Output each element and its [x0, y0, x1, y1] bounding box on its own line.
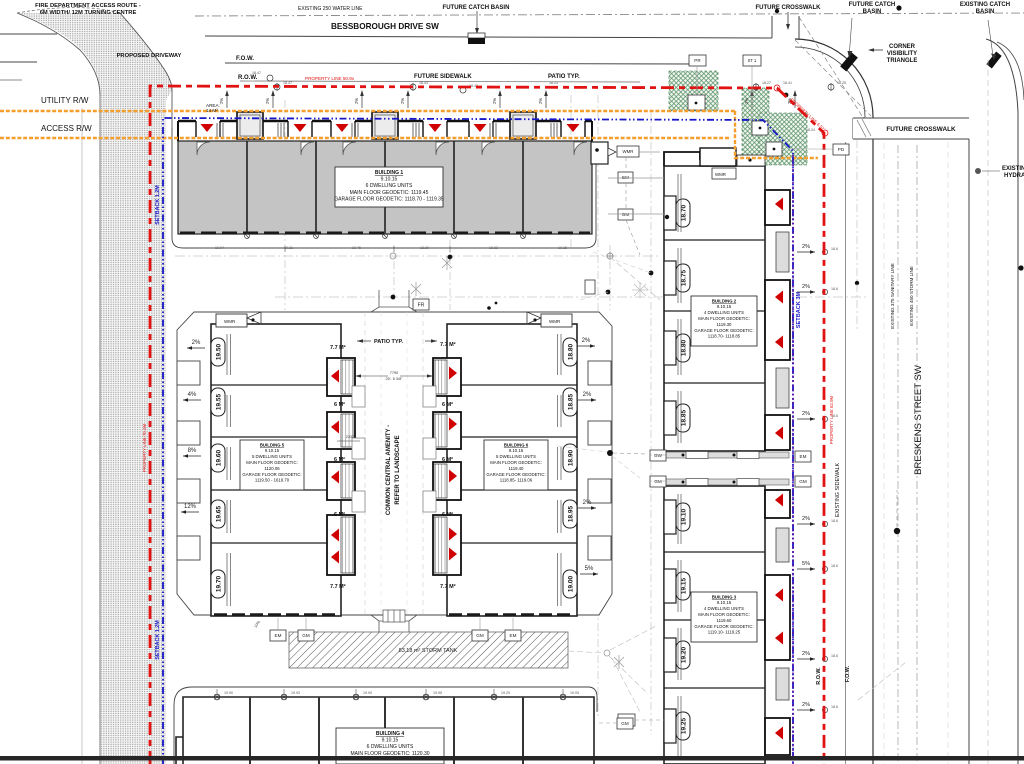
svg-text:18.6: 18.6	[831, 654, 838, 658]
svg-text:WMR: WMR	[715, 172, 726, 177]
svg-text:18.6: 18.6	[831, 519, 838, 523]
svg-text:PROPERTY LINE 70.2M: PROPERTY LINE 70.2M	[142, 423, 147, 472]
svg-text:19.45: 19.45	[352, 246, 361, 250]
svg-text:7.7 M²: 7.7 M²	[330, 344, 346, 351]
svg-text:1119.50 - 1619.70: 1119.50 - 1619.70	[255, 478, 290, 483]
svg-text:F.O.W.: F.O.W.	[845, 665, 851, 682]
svg-text:MAIN FLOOR GEODETIC: 1119.45: MAIN FLOOR GEODETIC: 1119.45	[350, 190, 429, 196]
svg-text:FIRE DEPARTMENT ACCESS ROUTE -: FIRE DEPARTMENT ACCESS ROUTE -	[35, 3, 141, 9]
svg-text:6 M²: 6 M²	[334, 401, 345, 408]
svg-text:2%: 2%	[802, 651, 810, 657]
svg-text:2%: 2%	[583, 500, 592, 506]
svg-text:1119.30: 1119.30	[717, 322, 733, 327]
svg-text:R.O.W.: R.O.W.	[238, 75, 258, 81]
svg-text:BASIN: BASIN	[976, 9, 995, 15]
svg-text:GARAGE FLOOR GEODETIC: 1118.70: GARAGE FLOOR GEODETIC: 1118.70 - 1119.35	[334, 196, 444, 202]
svg-text:BASIN: BASIN	[863, 9, 882, 15]
svg-text:2%: 2%	[582, 338, 591, 344]
svg-text:9.10.15: 9.10.15	[265, 448, 280, 453]
svg-text:6 DWELLING UNITS: 6 DWELLING UNITS	[366, 183, 413, 189]
svg-text:12%: 12%	[184, 504, 197, 510]
svg-text:REFER TO LANDSCAPE: REFER TO LANDSCAPE	[395, 435, 401, 504]
svg-text:19.90: 19.90	[363, 691, 372, 695]
svg-text:9.10.15: 9.10.15	[717, 600, 732, 605]
svg-text:SETBACK 1.2M: SETBACK 1.2M	[155, 620, 161, 660]
svg-text:PATIO TYP.: PATIO TYP.	[374, 339, 404, 345]
svg-text:1119.60: 1119.60	[717, 618, 733, 623]
svg-text:19.04: 19.04	[215, 246, 224, 250]
svg-text:2330: 2330	[346, 435, 354, 439]
svg-text:6M WIDTH/ 12M TURNING CENTRE: 6M WIDTH/ 12M TURNING CENTRE	[40, 10, 137, 16]
svg-text:WMR: WMR	[623, 149, 634, 154]
svg-text:7.7 M²: 7.7 M²	[330, 583, 346, 590]
svg-text:GM: GM	[622, 212, 630, 217]
svg-text:BRESKENS STREET SW: BRESKENS STREET SW	[913, 365, 924, 475]
svg-text:2%: 2%	[192, 340, 201, 346]
svg-text:9.10.15: 9.10.15	[381, 177, 398, 183]
svg-text:EXISTING SIDEWALK: EXISTING SIDEWALK	[835, 462, 841, 517]
svg-text:19.95: 19.95	[433, 691, 442, 695]
svg-text:PROPERTY LINE 50.9x: PROPERTY LINE 50.9x	[305, 76, 355, 81]
svg-text:UTILITY R/W: UTILITY R/W	[41, 96, 89, 105]
svg-text:19.70: 19.70	[215, 575, 222, 592]
svg-text:PROPERTY LINE 62.9M: PROPERTY LINE 62.9M	[829, 395, 834, 444]
svg-text:MAIN FLOOR GEODETIC:: MAIN FLOOR GEODETIC:	[490, 460, 542, 465]
svg-text:GW: GW	[654, 453, 663, 458]
svg-text:PR: PR	[694, 58, 701, 63]
svg-text:GM: GM	[799, 479, 807, 484]
svg-text:EXISTING 375 SANITARY LINE: EXISTING 375 SANITARY LINE	[890, 263, 895, 329]
svg-text:2%: 2%	[583, 392, 592, 398]
svg-text:BUILDING 5: BUILDING 5	[260, 442, 285, 447]
svg-text:2%: 2%	[492, 98, 497, 104]
svg-text:MAIN FLOOR GEODETIC:: MAIN FLOOR GEODETIC:	[246, 460, 298, 465]
svg-text:FUTURE CROSSWALK: FUTURE CROSSWALK	[886, 126, 956, 133]
svg-text:TRIANGLE: TRIANGLE	[887, 58, 918, 64]
svg-text:GM: GM	[621, 721, 629, 726]
svg-text:EXISTING 250 WATER LINE: EXISTING 250 WATER LINE	[298, 6, 363, 12]
svg-text:MAIN FLOOR GEODETIC:: MAIN FLOOR GEODETIC:	[698, 612, 750, 617]
svg-text:FUTURE CATCH: FUTURE CATCH	[849, 2, 896, 8]
svg-text:7.7 M²: 7.7 M²	[440, 341, 456, 348]
svg-text:25'- 6 3/8": 25'- 6 3/8"	[385, 377, 403, 381]
svg-text:18.85: 18.85	[567, 393, 574, 410]
svg-text:1119.40: 1119.40	[509, 466, 525, 471]
svg-text:5%: 5%	[802, 561, 810, 567]
svg-text:19.90: 19.90	[224, 691, 233, 695]
svg-text:7790: 7790	[390, 371, 398, 375]
svg-text:ACCESS R/W: ACCESS R/W	[41, 124, 92, 133]
svg-text:BESSBOROUGH DRIVE SW: BESSBOROUGH DRIVE SW	[331, 22, 439, 31]
svg-text:4%: 4%	[188, 392, 197, 398]
svg-text:5%: 5%	[585, 566, 594, 572]
svg-text:2%: 2%	[802, 244, 810, 250]
svg-text:PATIO TYP.: PATIO TYP.	[548, 74, 580, 80]
svg-text:FUTURE CATCH BASIN: FUTURE CATCH BASIN	[443, 5, 510, 11]
svg-text:18.41: 18.41	[783, 81, 792, 85]
svg-text:2%: 2%	[354, 98, 359, 104]
svg-text:EM: EM	[510, 633, 517, 638]
svg-text:19.60: 19.60	[215, 449, 222, 466]
svg-text:1120.06: 1120.06	[264, 466, 280, 471]
svg-text:9.10.15: 9.10.15	[382, 738, 399, 744]
svg-text:19.55: 19.55	[215, 393, 222, 410]
svg-text:1118.70- 1118.85: 1118.70- 1118.85	[708, 334, 741, 339]
svg-text:SETBACK 1.2M: SETBACK 1.2M	[155, 185, 161, 225]
svg-text:19.31: 19.31	[284, 246, 293, 250]
svg-text:EM: EM	[800, 454, 807, 459]
svg-text:18.23: 18.23	[549, 81, 558, 85]
svg-text:6 M²: 6 M²	[442, 511, 453, 518]
svg-text:HYDRA: HYDRA	[1004, 173, 1024, 179]
svg-text:18.24: 18.24	[806, 128, 815, 132]
svg-text:EXISTING CATCH: EXISTING CATCH	[960, 2, 1010, 8]
svg-text:2%: 2%	[400, 98, 405, 104]
svg-text:ST 1: ST 1	[748, 58, 757, 63]
svg-text:1118.85- 1119.06: 1118.85- 1119.06	[500, 478, 533, 483]
svg-text:83.18 m² STORM TANK: 83.18 m² STORM TANK	[399, 648, 458, 654]
svg-text:19.50: 19.50	[215, 343, 222, 360]
svg-text:F.O.W.: F.O.W.	[236, 56, 254, 62]
svg-text:19.15: 19.15	[558, 246, 567, 250]
svg-text:5 DWELLING UNITS: 5 DWELLING UNITS	[252, 454, 292, 459]
svg-text:EXISTING: EXISTING	[1002, 166, 1024, 172]
svg-text:6 M²: 6 M²	[442, 401, 453, 408]
svg-text:BUILDING 2: BUILDING 2	[712, 298, 737, 303]
svg-text:MAIN FLOOR GEODETIC: 1120.30: MAIN FLOOR GEODETIC: 1120.30	[350, 751, 429, 757]
svg-text:GARAGE FLOOR GEODETIC:: GARAGE FLOOR GEODETIC:	[694, 624, 753, 629]
svg-text:18.6: 18.6	[831, 564, 838, 568]
svg-text:4 DWELLING UNITS: 4 DWELLING UNITS	[704, 310, 744, 315]
svg-text:18.47: 18.47	[283, 81, 292, 85]
svg-text:GM: GM	[654, 479, 662, 484]
svg-text:19.00: 19.00	[567, 575, 574, 592]
svg-text:19.65: 19.65	[215, 505, 222, 522]
svg-text:18.6: 18.6	[831, 287, 838, 291]
svg-text:2%: 2%	[802, 516, 810, 522]
svg-text:VISIBILITY: VISIBILITY	[887, 51, 917, 57]
svg-text:18.6: 18.6	[831, 705, 838, 709]
svg-text:2%: 2%	[265, 98, 270, 104]
svg-text:18.80: 18.80	[420, 246, 429, 250]
svg-text:2%: 2%	[802, 411, 810, 417]
svg-text:COMMON CENTRAL AMENITY -: COMMON CENTRAL AMENITY -	[386, 425, 392, 515]
svg-text:2%: 2%	[538, 98, 543, 104]
svg-text:18.27: 18.27	[762, 81, 771, 85]
svg-text:6 DWELLING UNITS: 6 DWELLING UNITS	[367, 744, 414, 750]
svg-text:BUILDING 6: BUILDING 6	[504, 442, 529, 447]
svg-text:18.95: 18.95	[567, 505, 574, 522]
svg-text:MAIN FLOOR GEODETIC:: MAIN FLOOR GEODETIC:	[698, 316, 750, 321]
svg-text:2%: 2%	[744, 98, 749, 104]
svg-text:FUTURE CROSSWALK: FUTURE CROSSWALK	[756, 5, 822, 11]
svg-text:19.93: 19.93	[291, 691, 300, 695]
svg-text:FR: FR	[418, 302, 425, 308]
svg-text:18.43: 18.43	[419, 81, 428, 85]
svg-text:2%: 2%	[802, 702, 810, 708]
svg-text:8%: 8%	[188, 448, 197, 454]
svg-text:GM: GM	[476, 633, 484, 638]
svg-text:2%: 2%	[802, 284, 810, 290]
svg-text:18.6: 18.6	[831, 247, 838, 251]
svg-text:BUILDING 3: BUILDING 3	[712, 594, 737, 599]
svg-text:9.10.15: 9.10.15	[509, 448, 524, 453]
svg-text:6 M²: 6 M²	[334, 456, 345, 463]
svg-text:GM: GM	[302, 633, 310, 638]
svg-text:7.7 M²: 7.7 M²	[440, 583, 456, 590]
svg-text:19.05: 19.05	[570, 691, 579, 695]
svg-text:18.80: 18.80	[567, 343, 574, 360]
svg-text:GARAGE FLOOR GEODETIC:: GARAGE FLOOR GEODETIC:	[242, 472, 301, 477]
svg-text:6 M²: 6 M²	[442, 456, 453, 463]
svg-text:1119.10- 1119.25: 1119.10- 1119.25	[708, 630, 741, 635]
svg-text:18.25: 18.25	[837, 81, 846, 85]
svg-text:PROPOSED DRIVEWAY: PROPOSED DRIVEWAY	[117, 53, 182, 59]
svg-text:18.47: 18.47	[252, 71, 261, 75]
svg-text:5 DWELLING UNITS: 5 DWELLING UNITS	[496, 454, 536, 459]
svg-text:14 M²: 14 M²	[206, 108, 218, 113]
svg-text:R.O.W.: R.O.W.	[816, 667, 822, 685]
svg-text:4 DWELLING UNITS: 4 DWELLING UNITS	[704, 606, 744, 611]
svg-text:WMR: WMR	[224, 319, 236, 324]
svg-text:GARAGE FLOOR GEODETIC:: GARAGE FLOOR GEODETIC:	[694, 328, 753, 333]
svg-text:EM: EM	[275, 633, 282, 638]
svg-text:19.20: 19.20	[501, 691, 510, 695]
svg-text:CORNER: CORNER	[889, 44, 916, 50]
svg-text:SETBACK 3M: SETBACK 3M	[796, 291, 802, 328]
svg-text:18.90: 18.90	[567, 449, 574, 466]
svg-text:18.83: 18.83	[489, 246, 498, 250]
svg-text:6 M²: 6 M²	[334, 511, 345, 518]
svg-text:GARAGE FLOOR GEODETIC:: GARAGE FLOOR GEODETIC:	[486, 472, 545, 477]
svg-text:PD: PD	[838, 147, 845, 152]
svg-text:EXISTING 450 STORM LINE: EXISTING 450 STORM LINE	[909, 266, 914, 326]
svg-text:BUILDING 4: BUILDING 4	[376, 731, 405, 737]
svg-text:FUTURE SIDEWALK: FUTURE SIDEWALK	[414, 74, 472, 80]
svg-text:WMR: WMR	[549, 319, 561, 324]
svg-text:BUILDING 1: BUILDING 1	[375, 170, 404, 176]
svg-text:9.10.15: 9.10.15	[717, 304, 732, 309]
